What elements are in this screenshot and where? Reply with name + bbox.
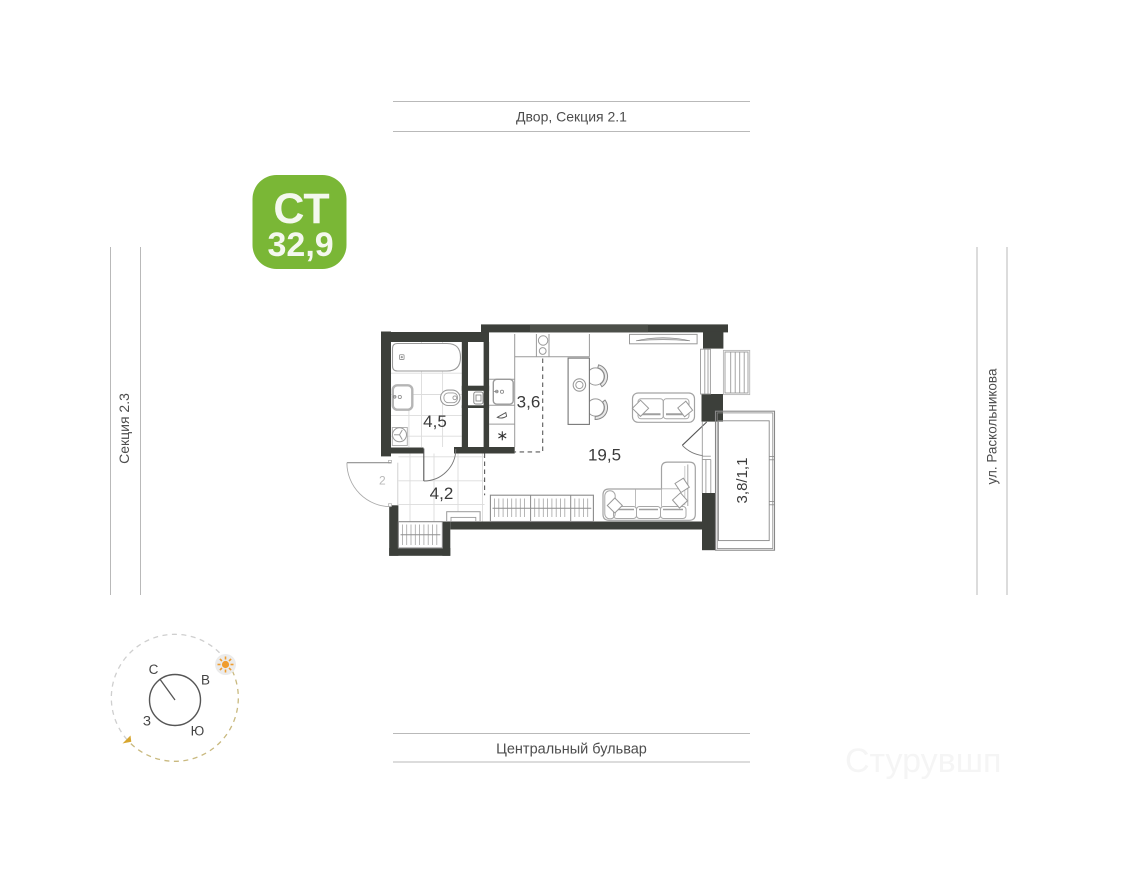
svg-text:Центральный бульвар: Центральный бульвар — [496, 742, 647, 758]
svg-text:В: В — [201, 673, 210, 688]
svg-text:4,2: 4,2 — [430, 484, 454, 503]
svg-text:ул. Раскольникова: ул. Раскольникова — [985, 368, 1000, 484]
svg-text:3,8/1,1: 3,8/1,1 — [734, 458, 751, 504]
svg-text:Ю: Ю — [191, 724, 205, 739]
svg-text:Стурувшп: Стурувшп — [845, 742, 1001, 780]
svg-text:С: С — [149, 662, 159, 677]
svg-text:3,6: 3,6 — [517, 393, 541, 412]
svg-text:19,5: 19,5 — [588, 446, 621, 465]
svg-text:З: З — [143, 714, 151, 729]
svg-text:Двор, Секция 2.1: Двор, Секция 2.1 — [516, 109, 627, 125]
svg-text:4,5: 4,5 — [423, 412, 447, 431]
svg-text:32,9: 32,9 — [268, 226, 334, 264]
svg-text:Секция 2.3: Секция 2.3 — [116, 393, 132, 464]
svg-text:2: 2 — [379, 474, 386, 488]
